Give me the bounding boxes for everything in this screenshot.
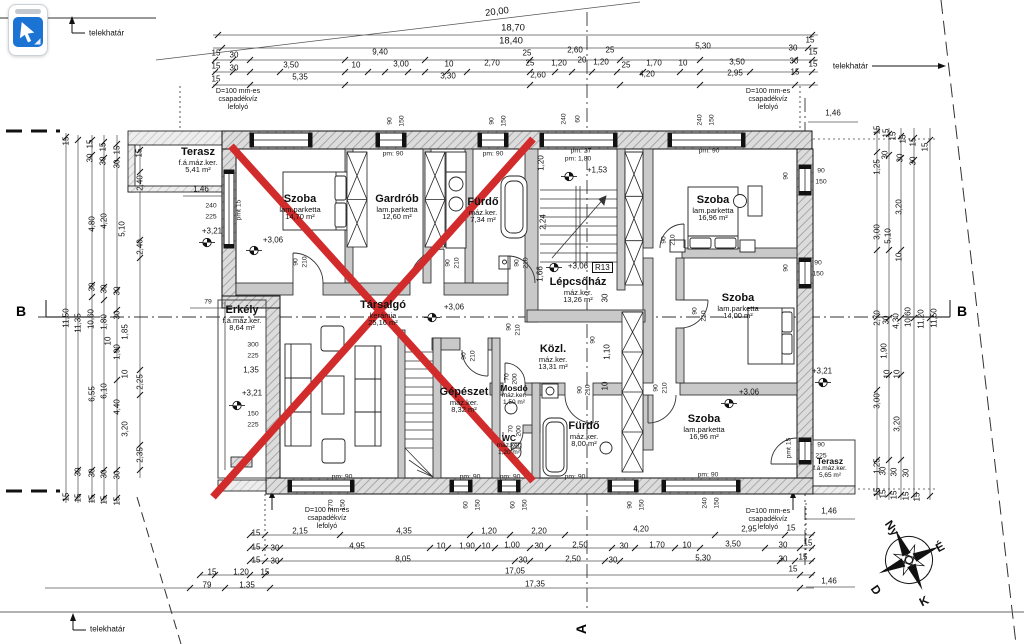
- room-label-erkly: Erkélyf.á.máz.ker.8,64 m²: [223, 305, 262, 332]
- dimension-text: 11,50: [62, 308, 71, 327]
- dimension-text: 1,20: [593, 58, 609, 67]
- dimension-text: pmt 15: [786, 438, 793, 459]
- dimension-text: 150: [714, 497, 721, 508]
- dimension-text: pm: 90: [383, 151, 404, 158]
- dimension-text: 3,20: [893, 416, 902, 432]
- dimension-text: 70: [508, 425, 515, 433]
- dimension-text: 15: [208, 568, 217, 577]
- dimension-text: 150: [639, 499, 646, 510]
- dimension-text: 240: [205, 203, 216, 210]
- dimension-text: 90: [783, 172, 790, 180]
- dimension-text: 3,00: [873, 224, 882, 240]
- elevation-label: +3,06: [263, 236, 283, 245]
- dimension-text: 225: [205, 214, 216, 221]
- dimension-text: 25: [523, 49, 532, 58]
- dimension-text: 1,70: [649, 541, 665, 550]
- dimension-text: 15: [100, 496, 109, 505]
- dimension-text: 30: [909, 157, 918, 166]
- dimension-text: 10: [895, 253, 904, 262]
- compass-west-label: Ny: [882, 518, 902, 539]
- dimension-text: 150: [501, 115, 508, 126]
- elevation-label: +3,06: [568, 262, 588, 271]
- elevation-label: +3,21: [812, 367, 832, 376]
- dimension-text: 90: [817, 168, 825, 175]
- dimension-text: 150: [522, 499, 529, 510]
- dimension-text: 90: [653, 384, 660, 392]
- dimension-text: 15: [88, 495, 97, 504]
- dimension-text: 17,35: [525, 580, 545, 589]
- dimension-text: 15: [890, 491, 899, 500]
- room-label-lpcshz: Lépcsőházmáz.ker.13,26 m²: [550, 277, 607, 304]
- elevation-label: +3,21: [202, 227, 222, 236]
- room-label-szoba: Szobalam.parketta14,00 m²: [717, 293, 758, 320]
- dimension-text: 11,35: [74, 313, 83, 332]
- dimension-text: 15: [799, 553, 808, 562]
- dimension-text: 79: [204, 299, 212, 306]
- dimension-text: 15: [212, 62, 221, 71]
- dimension-text: pm: 90: [332, 474, 353, 481]
- dimension-text: pm: 90: [500, 474, 521, 481]
- dimension-text: 30: [113, 471, 122, 480]
- dimension-text: 30: [230, 64, 239, 73]
- dimension-text: 1,46: [193, 185, 209, 194]
- elevation-marker-icon: [229, 399, 245, 418]
- dimension-text: 4,20: [100, 213, 109, 229]
- dimension-text: 11,20: [917, 309, 926, 328]
- room-label-trsalg: Társalgókerámia25,16 m²: [360, 300, 406, 327]
- dimension-text: 10: [437, 542, 446, 551]
- dimension-text: 8,05: [395, 555, 411, 564]
- dimension-text: 30: [535, 542, 544, 551]
- dimension-text: 1,00: [504, 541, 520, 550]
- cursor-icon: [13, 17, 43, 47]
- elevation-label: +1,53: [587, 166, 607, 175]
- dimension-text: 30: [620, 542, 629, 551]
- dimension-text: 15: [913, 493, 922, 502]
- dimension-text: 9,40: [372, 48, 388, 57]
- dimension-text: 15: [86, 140, 95, 149]
- dimension-text: 2,40: [136, 239, 145, 255]
- dimension-text: 90: [692, 307, 699, 315]
- dimension-text: 4,95: [349, 542, 365, 551]
- dimension-text: 15: [909, 138, 918, 147]
- dimension-text: 15: [212, 49, 221, 58]
- dimension-text: 2,40: [136, 175, 145, 191]
- dimension-text: 10: [121, 370, 130, 379]
- dimension-text: 15: [791, 68, 800, 77]
- dimension-text: 15: [789, 565, 798, 574]
- dimension-text: 30: [230, 51, 239, 60]
- dimension-text: 1,20: [233, 568, 249, 577]
- stair-code-label: R13: [592, 262, 613, 273]
- dimension-text: 210: [515, 324, 522, 335]
- dimension-text: pm: 90: [698, 472, 719, 479]
- dimension-text: 1,80: [100, 314, 109, 330]
- dimension-text: 2,50: [572, 541, 588, 550]
- dimension-text: 15: [252, 543, 261, 552]
- dimension-text: 30: [100, 470, 109, 479]
- dimension-text: 240: [702, 497, 709, 508]
- dimension-text: 11,50: [930, 308, 939, 327]
- dimension-text: 79: [203, 581, 212, 590]
- elevation-marker-icon: [199, 236, 215, 255]
- dimension-text: 210: [662, 382, 669, 393]
- dimension-text: 1,90: [459, 542, 475, 551]
- compass-south-label: D: [868, 582, 884, 597]
- room-label-terasz: Teraszf.á.máz.ker.5,41 m²: [179, 147, 218, 174]
- room-label-szoba: Szobalam.parketta16,96 m²: [692, 195, 733, 222]
- dimension-text: 1,20: [537, 155, 546, 171]
- dimension-text: 17,05: [505, 567, 525, 576]
- elevation-marker-icon: [424, 311, 440, 330]
- section-marker-b-left: B: [16, 303, 26, 319]
- dimension-text: 3,50: [729, 58, 745, 67]
- section-marker-a-bottom: A: [573, 624, 589, 634]
- dimension-text: pm: 90: [699, 148, 720, 155]
- room-label-wc: WCmáz.ker.1,20 m²: [497, 434, 522, 457]
- compass-north-label: É: [933, 539, 947, 555]
- dimension-text: 210: [454, 257, 461, 268]
- dimension-text: 4,35: [396, 527, 412, 536]
- dimension-text: 210: [523, 257, 530, 268]
- dimension-text: 90: [577, 386, 584, 394]
- dimension-text: 2,70: [484, 59, 500, 68]
- dimension-text: 10: [104, 337, 113, 346]
- dimension-text: 90: [461, 352, 468, 360]
- dimension-text: 210: [302, 256, 309, 267]
- dimension-text: 225: [247, 353, 258, 360]
- dimension-text: 30: [881, 151, 890, 160]
- dimension-text: 15: [74, 494, 83, 503]
- dimension-text: 15: [806, 36, 815, 45]
- dimension-text: 1,20: [551, 59, 567, 68]
- dimension-text: 1,66: [536, 266, 545, 282]
- dimension-text: 15: [252, 529, 261, 538]
- dimension-text: 1,35: [239, 581, 255, 590]
- dimension-text: 30: [86, 154, 95, 163]
- dimension-text: 3,20: [121, 421, 130, 437]
- dimension-text: 240: [561, 113, 568, 124]
- dimension-text: 15: [809, 60, 818, 69]
- dimension-text: 2,20: [531, 527, 547, 536]
- dimension-text: 30: [271, 557, 280, 566]
- dimension-text: 1,90: [113, 344, 122, 360]
- dimension-text: 4,20: [639, 70, 655, 79]
- dimension-text: 15: [809, 48, 818, 57]
- dimension-text: 10: [683, 541, 692, 550]
- dimension-text: 90: [661, 236, 668, 244]
- dimension-text: 200: [516, 425, 523, 436]
- dimension-text: 4,40: [113, 399, 122, 415]
- dimension-text: 30: [519, 556, 528, 565]
- dimension-text: 1,10: [603, 344, 612, 360]
- section-marker-b-right: B: [957, 303, 967, 319]
- dimension-text: 1,25: [873, 159, 882, 175]
- dimension-text: 60: [510, 501, 517, 509]
- dimension-text: 210: [701, 310, 708, 321]
- dimension-text: 200: [512, 373, 519, 384]
- dimension-text: 25: [622, 61, 631, 70]
- dimension-text: 3,20: [895, 199, 904, 215]
- dimension-text: 5,35: [292, 73, 308, 82]
- dimension-text: 10: [352, 61, 361, 70]
- elevation-label: +3,06: [444, 303, 464, 312]
- elevation-label: +3,21: [242, 389, 262, 398]
- dimension-text: 5,30: [695, 554, 711, 563]
- elevation-marker-icon: [246, 244, 262, 263]
- dimension-text: 15: [99, 143, 108, 152]
- dimension-text: 210: [470, 350, 477, 361]
- dimension-text: 10,60: [87, 309, 96, 329]
- dimension-text: 5,30: [695, 42, 711, 51]
- drain-note: D=100 mm-escsapadékvízlefolyó: [746, 88, 790, 111]
- dimension-text: 90: [293, 258, 300, 266]
- dimension-text: 90: [514, 259, 521, 267]
- compass-east-label: K: [917, 593, 931, 609]
- dimension-text: 3,30: [440, 72, 456, 81]
- dimension-text: 2,95: [727, 69, 743, 78]
- dimension-text: 30: [789, 44, 798, 53]
- dimension-text: 6,55: [88, 386, 97, 402]
- drain-note: D=100 mm-escsapadékvízlefolyó: [305, 507, 349, 530]
- dimension-text: 300: [247, 342, 258, 349]
- dimension-text: 15: [902, 492, 911, 501]
- dimension-text: 2,60: [567, 46, 583, 55]
- dimension-text: 15: [921, 143, 930, 152]
- cursor-tool-button[interactable]: [8, 4, 48, 56]
- dimension-text: 4,80: [88, 216, 97, 232]
- dimension-text: 30: [779, 541, 788, 550]
- dimension-text: 30: [601, 294, 610, 303]
- dimension-text: 30: [902, 469, 911, 478]
- dimension-text: 10,60: [904, 307, 913, 327]
- dimension-text: 2,24: [539, 214, 548, 230]
- elevation-label: +3,06: [739, 388, 759, 397]
- dimension-text: 1,35: [243, 366, 259, 375]
- dimension-text: 15: [889, 132, 898, 141]
- dimension-text: 30: [88, 469, 97, 478]
- dimension-text: 15: [879, 490, 888, 499]
- dimension-text: 10: [601, 382, 610, 391]
- dimension-text: 2,25: [136, 374, 145, 390]
- dimension-text: 90: [783, 264, 790, 272]
- dimension-text: 225: [815, 453, 826, 460]
- dimension-text: pm: 90: [483, 151, 504, 158]
- dimension-text: 15: [261, 568, 270, 577]
- dimension-text: 30: [609, 556, 618, 565]
- dimension-text: 15: [873, 126, 882, 135]
- dimension-text: 15: [113, 146, 122, 155]
- dimension-text: 90: [590, 336, 597, 344]
- dimension-text: 90: [814, 260, 822, 267]
- dimension-text: 15: [252, 556, 261, 565]
- dimension-text: 15: [899, 135, 908, 144]
- dimension-text: 1,20: [481, 527, 497, 536]
- dimension-text: 2,35: [136, 447, 145, 463]
- dimension-text: 30: [890, 468, 899, 477]
- elevation-marker-icon: [721, 397, 737, 416]
- dimension-text: 225: [247, 422, 258, 429]
- room-label-frd: Fürdőmáz.ker.8,00 m²: [568, 421, 599, 448]
- dimension-text: 210: [670, 234, 677, 245]
- dimension-text: 25: [606, 46, 615, 55]
- telekhatar-label-bottom: telekhatár: [90, 625, 125, 634]
- elevation-marker-icon: [546, 261, 562, 280]
- dimension-text: 30: [790, 57, 799, 66]
- dimension-text: 3,00: [873, 393, 882, 409]
- dimension-text: 2,70: [873, 310, 882, 326]
- dimension-text: 1,85: [121, 324, 130, 340]
- dimension-text: 1,46: [821, 507, 837, 516]
- dimension-text: 10: [883, 370, 892, 379]
- dimension-text: 60: [575, 115, 582, 123]
- room-label-gardrb: Gardróblam.parketta12,60 m²: [375, 194, 418, 221]
- dimension-text: 5,10: [884, 228, 893, 244]
- dimension-text: 30: [113, 287, 122, 296]
- dimension-text: 2,50: [565, 555, 581, 564]
- dimension-text: 90: [817, 442, 825, 449]
- dimension-text: 30: [100, 285, 109, 294]
- dimension-text: 30: [271, 544, 280, 553]
- dimension-text: 30: [113, 160, 122, 169]
- dimension-text: 90: [445, 259, 452, 267]
- room-label-gpszet: Gépészetmáz.ker.8,32 m²: [440, 387, 489, 414]
- dimension-text: 15: [135, 149, 144, 158]
- dimension-text: 10: [679, 59, 688, 68]
- dimension-text: 15: [62, 493, 71, 502]
- dimension-text: 30: [88, 283, 97, 292]
- dimension-text: 2,60: [530, 71, 546, 80]
- dimension-text: 3,00: [393, 60, 409, 69]
- dimension-text: 15: [212, 75, 221, 84]
- dimension-text: 90: [506, 323, 513, 331]
- room-label-szoba: Szobalam.parketta14,70 m²: [279, 194, 320, 221]
- room-label-terasz: Teraszf.á.máz.ker.5,65 m²: [813, 457, 847, 480]
- dimension-text: 15: [62, 137, 71, 146]
- dimension-text: 150: [815, 179, 826, 186]
- dimension-text: 30: [74, 468, 83, 477]
- dimension-text: 60: [463, 501, 470, 509]
- dimension-text: 150: [475, 499, 482, 510]
- dimension-text: 1,46: [825, 109, 841, 118]
- dimension-text: 210: [585, 384, 592, 395]
- dimension-text: 30: [113, 311, 122, 320]
- dimension-text: 20,00: [485, 5, 510, 19]
- dimension-text: 70: [504, 373, 511, 381]
- dimension-text: 150: [399, 115, 406, 126]
- dimension-text: 5,10: [118, 221, 127, 237]
- telekhatar-label-right: telekhatár: [833, 62, 868, 71]
- dimension-text: 150: [709, 114, 716, 125]
- floor-plan-page: telekhatár telekhatár telekhatár B B A R…: [0, 0, 1024, 644]
- tool-button-handle: [15, 9, 41, 14]
- dimension-text: 18,40: [499, 36, 523, 47]
- room-label-szoba: Szobalam.parketta16,96 m²: [683, 414, 724, 441]
- room-label-kzl: Közl.máz.ker.13,31 m²: [538, 344, 568, 371]
- dimension-text: 90: [489, 117, 496, 125]
- dimension-text: 18,70: [501, 23, 525, 34]
- telekhatar-label-top: telekhatár: [89, 29, 124, 38]
- dimension-text: 20: [578, 56, 587, 65]
- dimension-text: 15: [113, 497, 122, 506]
- dimension-text: 150: [812, 271, 823, 278]
- room-label-mosd: Mosdómáz.ker.1,50 m²: [500, 384, 527, 407]
- dimension-text: 10: [445, 60, 454, 69]
- dimension-text: pm: 90: [565, 474, 586, 481]
- dimension-text: 25: [526, 59, 535, 68]
- elevation-marker-icon: [815, 376, 831, 395]
- drain-note: D=100 mm-escsapadékvízlefolyó: [746, 508, 790, 531]
- dimension-text: 4,20: [633, 525, 649, 534]
- dimension-text: pm: 27: [571, 148, 592, 155]
- dimension-text: 30: [879, 467, 888, 476]
- dimension-text: 15: [804, 539, 813, 548]
- label-layer: telekhatár telekhatár telekhatár B B A R…: [0, 0, 1024, 644]
- dimension-text: 1,90: [880, 343, 889, 359]
- drain-note: D=100 mm-escsapadékvízlefolyó: [216, 88, 260, 111]
- dimension-text: 150: [247, 411, 258, 418]
- dimension-text: 6,10: [100, 383, 109, 399]
- dimension-text: 30: [882, 316, 891, 325]
- room-label-frd: Fürdőmáz.ker.7,34 m²: [467, 197, 498, 224]
- dimension-text: 240: [697, 114, 704, 125]
- dimension-text: 90: [627, 501, 634, 509]
- dimension-text: pm: 90: [460, 474, 481, 481]
- dimension-text: pm: 1,80: [565, 156, 591, 163]
- dimension-text: 1,70: [646, 59, 662, 68]
- dimension-text: 3,50: [283, 61, 299, 70]
- dimension-text: pmt 15: [236, 200, 243, 221]
- dimension-text: 1,46: [821, 577, 837, 586]
- dimension-text: 30: [99, 157, 108, 166]
- dimension-text: 4,30: [892, 313, 901, 329]
- dimension-text: 10: [482, 542, 491, 551]
- dimension-text: 30: [896, 154, 905, 163]
- elevation-marker-icon: [561, 170, 577, 189]
- dimension-text: 30: [779, 555, 788, 564]
- dimension-text: 10: [893, 370, 902, 379]
- dimension-text: 90: [387, 117, 394, 125]
- dimension-text: 3,50: [725, 540, 741, 549]
